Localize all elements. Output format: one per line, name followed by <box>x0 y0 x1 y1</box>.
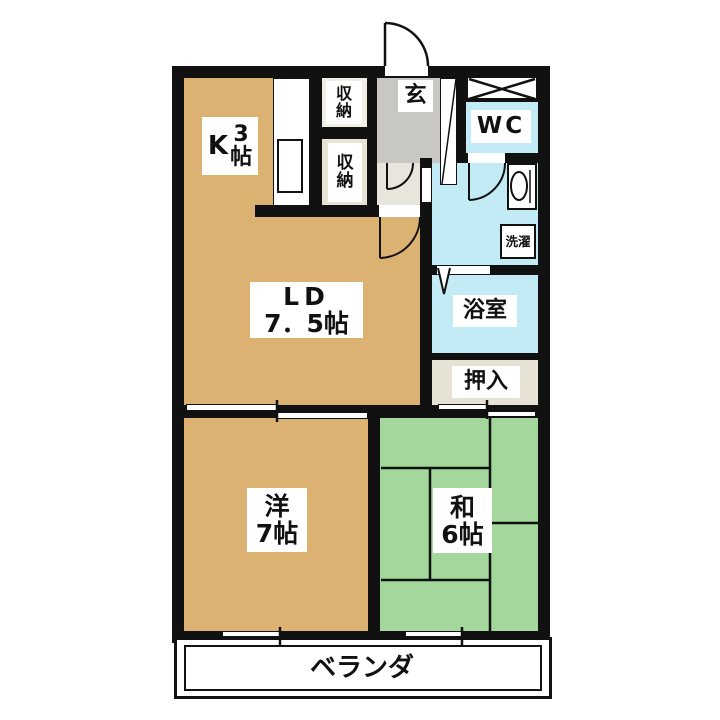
genkan-hall-door-swing-icon <box>387 163 413 189</box>
bathroom-label: 浴室 <box>453 295 517 327</box>
wc-label: WC <box>471 110 531 143</box>
laundry-box: 洗濯 <box>500 224 536 259</box>
kitchen-name: K <box>208 132 228 160</box>
living-dining-label: LD 7．5帖 <box>250 282 363 338</box>
storage-upper-name: 収納 <box>335 86 353 120</box>
storage-upper-label: 収納 <box>326 81 362 124</box>
bath-folding-door-icon <box>438 268 450 294</box>
ld-door-swing-icon <box>380 217 420 258</box>
living-dining-size: 7．5帖 <box>264 310 349 337</box>
kitchen-size: 3 <box>230 123 252 146</box>
japanese-room-label: 和 6帖 <box>433 488 492 553</box>
oshiire-label: 押入 <box>452 366 520 398</box>
living-dining-name: LD <box>283 283 330 310</box>
kitchen-label: K 3 帖 <box>202 117 258 175</box>
storage-lower-name: 収納 <box>335 155 355 191</box>
floorplan: K 3 帖 LD 7．5帖 洋 7帖 和 6帖 WC 浴室 押入 玄 収納 収納… <box>0 0 720 720</box>
entrance-label: 玄 <box>398 80 433 112</box>
kitchen-unit: 帖 <box>230 146 252 169</box>
western-room-label: 洋 7帖 <box>247 488 307 552</box>
crossed-window-icon <box>469 79 535 99</box>
laundry-name: 洗濯 <box>505 235 530 249</box>
wc-door-swing-icon <box>469 163 505 200</box>
kitchen-sink <box>278 140 302 192</box>
wc-name: WC <box>477 114 525 139</box>
japanese-room-name: 和 <box>450 494 475 521</box>
oshiire-name: 押入 <box>464 370 508 394</box>
veranda-label: ベランダ <box>282 653 442 683</box>
shoe-cabinet-diagonal <box>442 79 456 184</box>
bathroom-name: 浴室 <box>463 299 507 323</box>
veranda-name: ベランダ <box>310 654 414 682</box>
western-room-name: 洋 <box>264 493 289 520</box>
washroom-sink-icon <box>508 164 536 209</box>
japanese-room-size: 6帖 <box>441 521 483 548</box>
storage-lower-label: 収納 <box>328 143 362 202</box>
entrance-name: 玄 <box>404 84 426 108</box>
entrance-door-swing-icon <box>385 23 428 66</box>
western-room-size: 7帖 <box>256 520 298 547</box>
